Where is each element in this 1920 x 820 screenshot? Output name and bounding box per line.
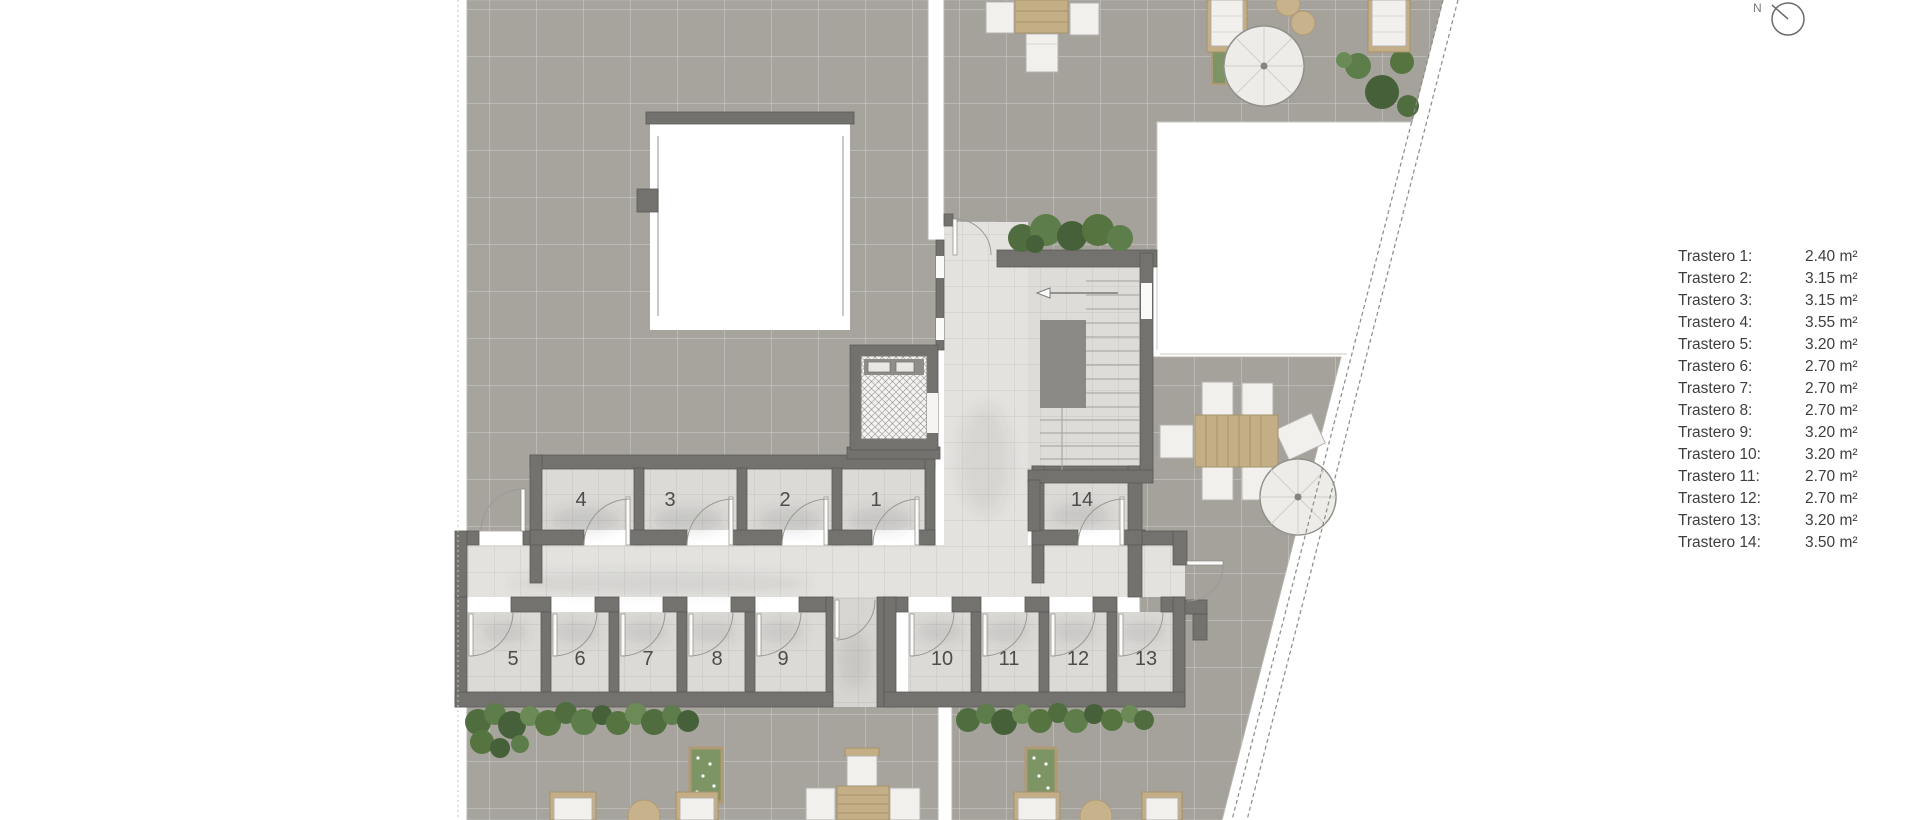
legend-area: 3.20 m² <box>1805 444 1858 466</box>
legend-area: 2.70 m² <box>1805 356 1858 378</box>
legend-area: 3.50 m² <box>1805 532 1858 554</box>
legend-row: Trastero 6:2.70 m² <box>1678 356 1858 378</box>
legend-area: 2.40 m² <box>1805 246 1858 268</box>
legend-label: Trastero 3: <box>1678 290 1805 312</box>
legend-row: Trastero 5:3.20 m² <box>1678 334 1858 356</box>
room-number-10: 10 <box>931 648 953 670</box>
pouf <box>1291 11 1315 35</box>
north-arrow-icon: N <box>1753 1 1804 35</box>
room-number-13: 13 <box>1135 648 1157 670</box>
north-label: N <box>1753 1 1762 15</box>
legend-area: 3.20 m² <box>1805 334 1858 356</box>
legend-row: Trastero 7:2.70 m² <box>1678 378 1858 400</box>
room-number-9: 9 <box>777 648 788 670</box>
legend-row: Trastero 9:3.20 m² <box>1678 422 1858 444</box>
legend-label: Trastero 12: <box>1678 488 1805 510</box>
room-number-2: 2 <box>779 489 790 511</box>
room-number-3: 3 <box>664 489 675 511</box>
legend-row: Trastero 11:2.70 m² <box>1678 466 1858 488</box>
room-number-6: 6 <box>574 648 585 670</box>
legend-label: Trastero 14: <box>1678 532 1805 554</box>
room-number-7: 7 <box>642 648 653 670</box>
legend-label: Trastero 11: <box>1678 466 1805 488</box>
area-legend: Trastero 1:2.40 m² Trastero 2:3.15 m² Tr… <box>1678 246 1858 554</box>
legend-label: Trastero 5: <box>1678 334 1805 356</box>
room-number-11: 11 <box>999 648 1020 670</box>
legend-row: Trastero 12:2.70 m² <box>1678 488 1858 510</box>
legend-area: 2.70 m² <box>1805 400 1858 422</box>
room-number-5: 5 <box>507 648 518 670</box>
legend-label: Trastero 1: <box>1678 246 1805 268</box>
legend-row: Trastero 3:3.15 m² <box>1678 290 1858 312</box>
legend-label: Trastero 9: <box>1678 422 1805 444</box>
room-number-1: 1 <box>870 489 881 511</box>
elevator <box>850 345 938 450</box>
void-top-right-edge <box>1157 122 1412 350</box>
legend-area: 3.15 m² <box>1805 268 1858 290</box>
legend-label: Trastero 10: <box>1678 444 1805 466</box>
legend-row: Trastero 10:3.20 m² <box>1678 444 1858 466</box>
legend-area: 3.20 m² <box>1805 510 1858 532</box>
legend-label: Trastero 6: <box>1678 356 1805 378</box>
legend-area: 3.55 m² <box>1805 312 1858 334</box>
floor-plan-drawing: 1 2 3 4 5 6 7 8 9 10 11 12 13 14 N <box>0 0 1920 820</box>
legend-row: Trastero 13:3.20 m² <box>1678 510 1858 532</box>
legend-area: 3.15 m² <box>1805 290 1858 312</box>
legend-row: Trastero 8:2.70 m² <box>1678 400 1858 422</box>
legend-label: Trastero 13: <box>1678 510 1805 532</box>
legend-area: 3.20 m² <box>1805 422 1858 444</box>
legend-area: 2.70 m² <box>1805 466 1858 488</box>
room-number-4: 4 <box>575 489 586 511</box>
legend-label: Trastero 7: <box>1678 378 1805 400</box>
room-number-8: 8 <box>711 648 722 670</box>
floor-plan-page: 1 2 3 4 5 6 7 8 9 10 11 12 13 14 N Trast… <box>0 0 1920 820</box>
legend-row: Trastero 14:3.50 m² <box>1678 532 1858 554</box>
umbrella-icon <box>1260 459 1336 535</box>
room-number-14: 14 <box>1071 489 1093 511</box>
legend-area: 2.70 m² <box>1805 488 1858 510</box>
pillar <box>637 189 658 212</box>
void-top-left <box>650 122 850 330</box>
legend-row: Trastero 2:3.15 m² <box>1678 268 1858 290</box>
room-number-12: 12 <box>1067 648 1089 670</box>
umbrella-icon <box>1224 26 1304 106</box>
legend-row: Trastero 1:2.40 m² <box>1678 246 1858 268</box>
legend-label: Trastero 4: <box>1678 312 1805 334</box>
legend-label: Trastero 2: <box>1678 268 1805 290</box>
legend-label: Trastero 8: <box>1678 400 1805 422</box>
legend-row: Trastero 4:3.55 m² <box>1678 312 1858 334</box>
legend-area: 2.70 m² <box>1805 378 1858 400</box>
stair-landing <box>1040 320 1086 408</box>
